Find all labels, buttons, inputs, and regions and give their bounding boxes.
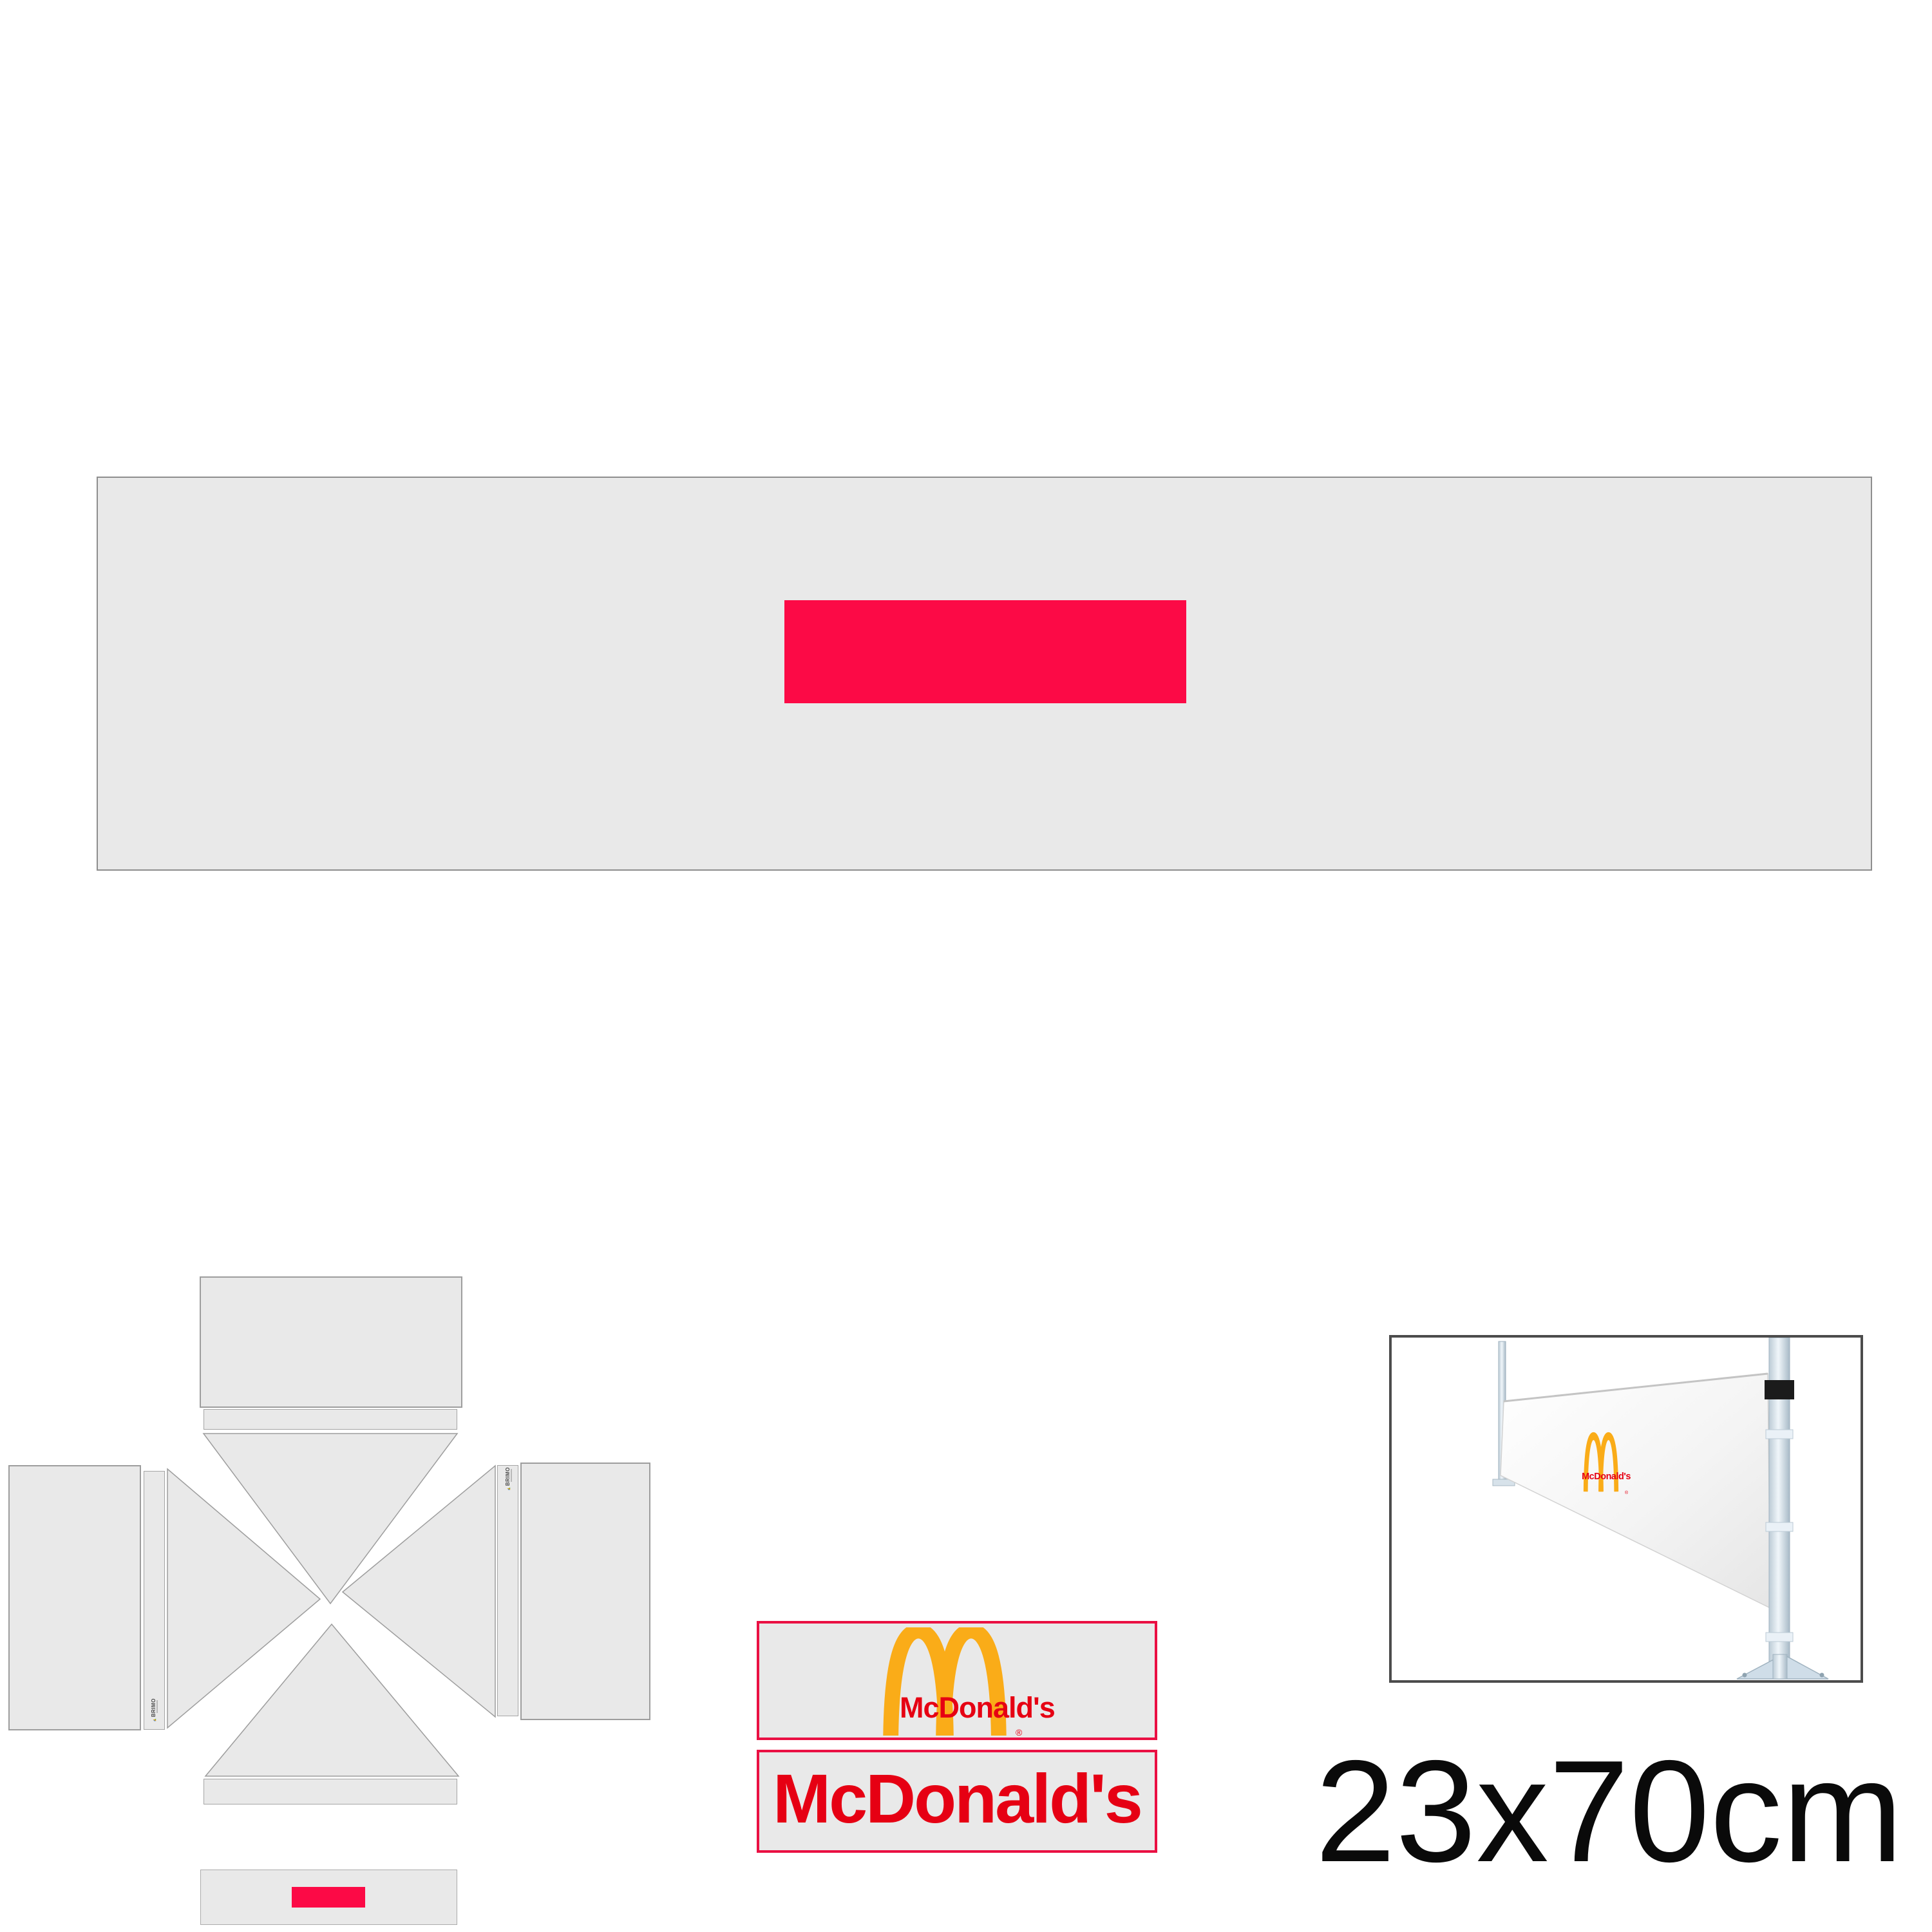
brimo-logo-right: BRIMO [504, 1467, 513, 1490]
registered-trademark-symbol: ® [1625, 1491, 1628, 1495]
mini-print-area-highlight [292, 1887, 365, 1908]
tent-left-valance-strip [144, 1471, 165, 1730]
mcd-wordmark: McDonald's [900, 1693, 1055, 1722]
brimo-icon [151, 1718, 158, 1721]
tent-right-valance-strip [497, 1465, 518, 1716]
mcd-wordmark-large: McDonald's [773, 1764, 1141, 1839]
brimo-logo-text: BRIMO [151, 1698, 156, 1717]
half-wall-fabric [1501, 1374, 1770, 1608]
brimo-logo-left: BRIMO [149, 1698, 158, 1721]
pole-strap-top [1766, 1430, 1793, 1439]
base-plate-hole [1743, 1673, 1747, 1678]
tent-right-panel [520, 1463, 650, 1720]
product-photo: McDonald's ® [1389, 1335, 1863, 1683]
brimo-logo-text: BRIMO [506, 1467, 511, 1486]
photo-illustration [1392, 1338, 1861, 1680]
brimo-tagline-rule [156, 1700, 158, 1713]
pole-strap-middle [1766, 1522, 1793, 1531]
tent-left-panel [8, 1465, 141, 1730]
base-plate-hole [1820, 1673, 1824, 1678]
dimension-label: 23x70cm [1315, 1739, 1903, 1884]
product-banner-canvas [97, 477, 1872, 871]
mcd-wordmark-on-fabric: McDonald's [1577, 1472, 1636, 1482]
brimo-icon [505, 1487, 512, 1490]
mini-banner-preview [200, 1870, 457, 1925]
black-velcro-strap [1765, 1380, 1794, 1399]
mcd-arches-banner-preview: McDonald's ® [757, 1621, 1157, 1740]
print-area-highlight [784, 600, 1186, 703]
registered-trademark-symbol: ® [1016, 1728, 1022, 1737]
brimo-tagline-rule [511, 1469, 512, 1482]
front-pole-bottom [1773, 1654, 1787, 1679]
mcd-wordmark-banner-preview: McDonald's [757, 1750, 1157, 1853]
tent-bottom-valance-strip [204, 1779, 457, 1804]
pole-strap-bottom [1766, 1633, 1793, 1642]
